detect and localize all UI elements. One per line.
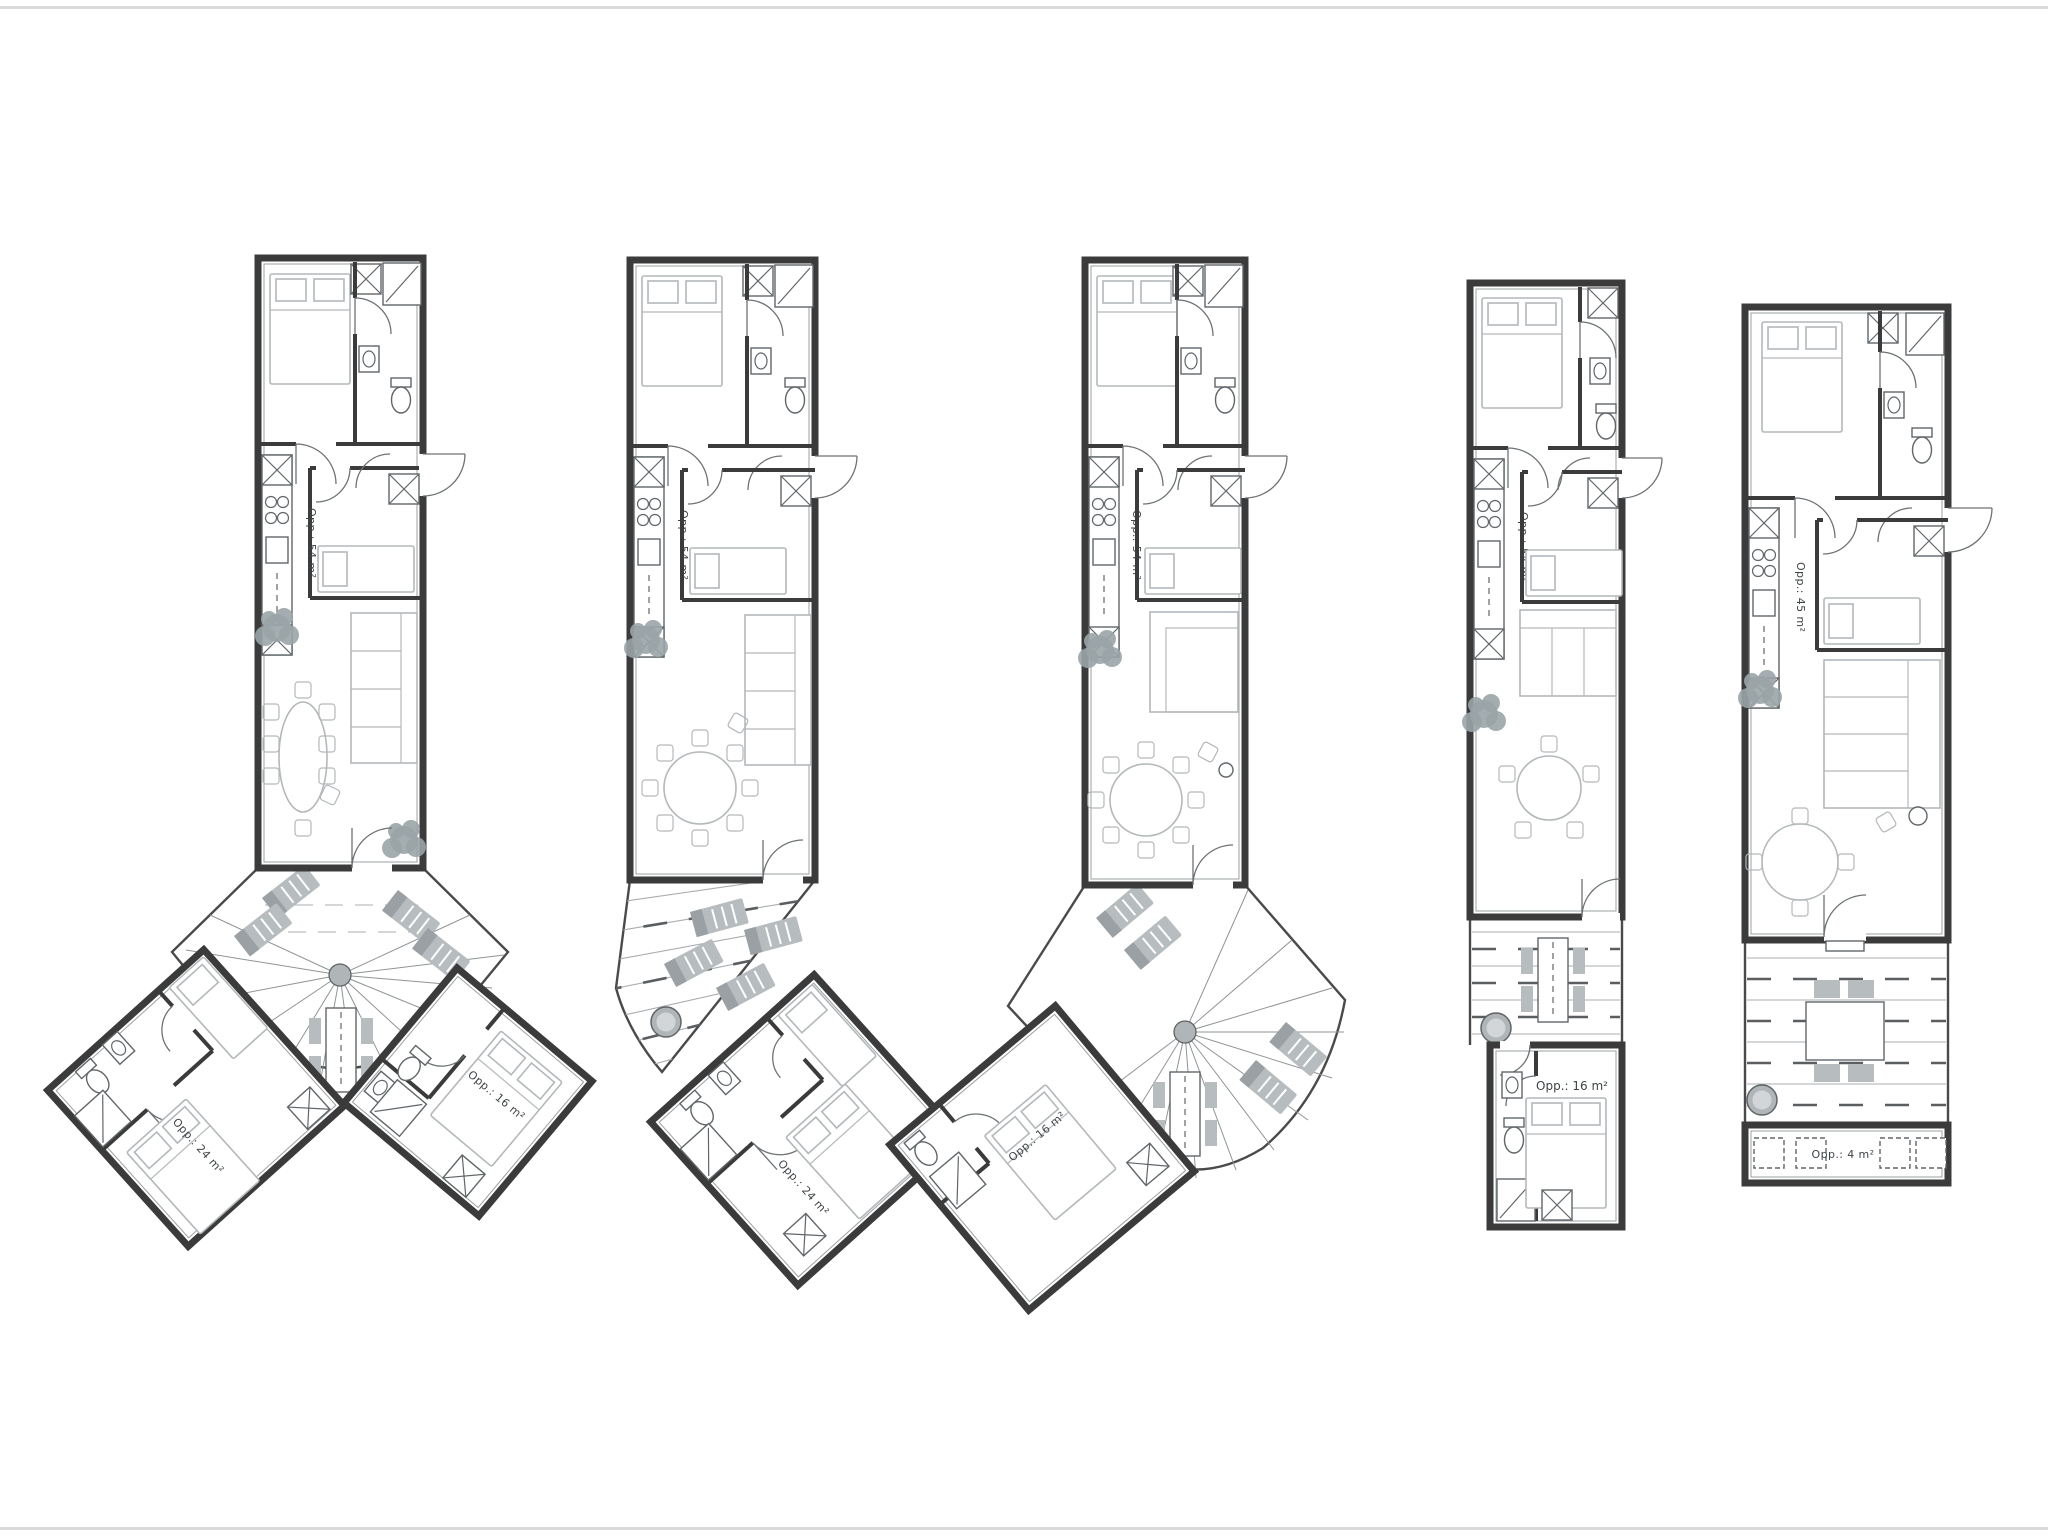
plan5-main-unit: Opp.: 45 m²	[1738, 307, 1992, 951]
shower-icon	[1205, 265, 1243, 307]
plan5-deck	[1745, 940, 1948, 1125]
sheet-bottom-edge	[0, 1527, 2048, 1530]
plan4-annex: Opp.: 16 m²	[1490, 1041, 1622, 1227]
wardrobe-icon	[1588, 288, 1618, 318]
double-bed-icon	[270, 274, 350, 384]
sink-icon	[1590, 358, 1610, 384]
sink-icon	[1502, 1072, 1522, 1098]
exterior-door-arc	[1622, 458, 1662, 498]
hot-tub-icon	[1481, 1013, 1511, 1043]
plan5-main-area-label: Opp.: 45 m²	[1794, 562, 1807, 632]
shower-icon	[383, 263, 421, 305]
plan4-annex-area-label: Opp.: 16 m²	[1536, 1079, 1608, 1093]
planter-box-icon	[1754, 1138, 1784, 1168]
plan5-planter-area-label: Opp.: 4 m²	[1812, 1148, 1875, 1161]
floor-plan-3: Opp.: 54 m²	[890, 260, 1345, 1310]
double-bed-icon	[1762, 322, 1842, 432]
single-bed-icon	[690, 548, 786, 594]
floor-plan-sheet: Opp.: 54 m²	[0, 0, 2048, 1536]
sink-icon	[1884, 392, 1904, 418]
shower-icon	[1906, 313, 1944, 355]
toilet-icon	[1596, 404, 1616, 439]
double-bed-icon	[1097, 276, 1177, 386]
wardrobe-icon	[1914, 526, 1944, 556]
floor-lamp-icon	[1219, 763, 1233, 777]
plan4-deck	[1470, 917, 1622, 1045]
floor-plan-4: Opp.: 54 m²	[1462, 283, 1662, 1227]
planter-box-icon	[1880, 1138, 1910, 1168]
sink-icon	[359, 346, 379, 372]
toilet-icon	[785, 378, 805, 413]
sink-icon	[1181, 348, 1201, 374]
planter-box-icon	[1916, 1138, 1946, 1168]
toilet-icon	[1215, 378, 1235, 413]
wardrobe-icon	[1211, 476, 1241, 506]
kitchen-icon	[1474, 459, 1504, 659]
single-bed-icon	[318, 546, 414, 592]
single-bed-icon	[1526, 550, 1622, 596]
double-bed-icon	[1482, 298, 1562, 408]
single-bed-icon	[1824, 598, 1920, 644]
toilet-icon	[1912, 428, 1932, 463]
floor-plan-1: Opp.: 54 m²	[48, 258, 592, 1246]
wardrobe-icon	[389, 474, 419, 504]
plan2-main-unit: Opp.: 54 m²	[624, 260, 857, 884]
plan3-deck-hub	[1174, 1021, 1196, 1043]
plan1-main-area-label: Opp.: 54 m²	[305, 508, 318, 578]
exterior-door-arc	[1948, 508, 1992, 552]
toilet-icon	[391, 378, 411, 413]
plan1-deck-hub	[329, 964, 351, 986]
side-table-icon	[1909, 807, 1927, 825]
shower-icon	[775, 265, 813, 307]
wardrobe-icon	[1868, 313, 1898, 343]
toilet-icon	[1504, 1118, 1524, 1153]
exterior-door-arc	[423, 454, 465, 496]
plan5-planter-strip: Opp.: 4 m²	[1745, 1125, 1948, 1183]
sofa-icon	[1824, 660, 1940, 808]
plan4-main-unit: Opp.: 54 m²	[1462, 283, 1662, 921]
sofa-icon	[745, 615, 811, 765]
floor-plan-5: Opp.: 45 m²	[1738, 307, 1992, 1183]
sink-icon	[751, 348, 771, 374]
plan3-main-unit: Opp.: 54 m²	[1078, 260, 1287, 889]
plan1-main-unit: Opp.: 54 m²	[255, 258, 465, 872]
exterior-door-arc	[1245, 456, 1287, 498]
sheet-top-edge	[0, 6, 2048, 9]
sofa-icon	[1520, 610, 1616, 696]
hot-tub-icon	[651, 1007, 681, 1037]
exterior-door-arc	[815, 456, 857, 498]
kitchen-icon	[1089, 457, 1119, 657]
outdoor-dining-table-icon	[1806, 980, 1884, 1082]
sofa-icon	[1150, 612, 1238, 712]
sofa-icon	[351, 613, 417, 763]
wardrobe-icon	[1588, 478, 1618, 508]
wardrobe-icon	[1542, 1190, 1572, 1220]
wardrobe-icon	[781, 476, 811, 506]
entry-step	[1826, 941, 1864, 951]
hot-tub-icon	[1747, 1085, 1777, 1115]
single-bed-icon	[1145, 548, 1241, 594]
double-bed-icon	[642, 276, 722, 386]
picnic-table-icon	[1521, 938, 1585, 1022]
